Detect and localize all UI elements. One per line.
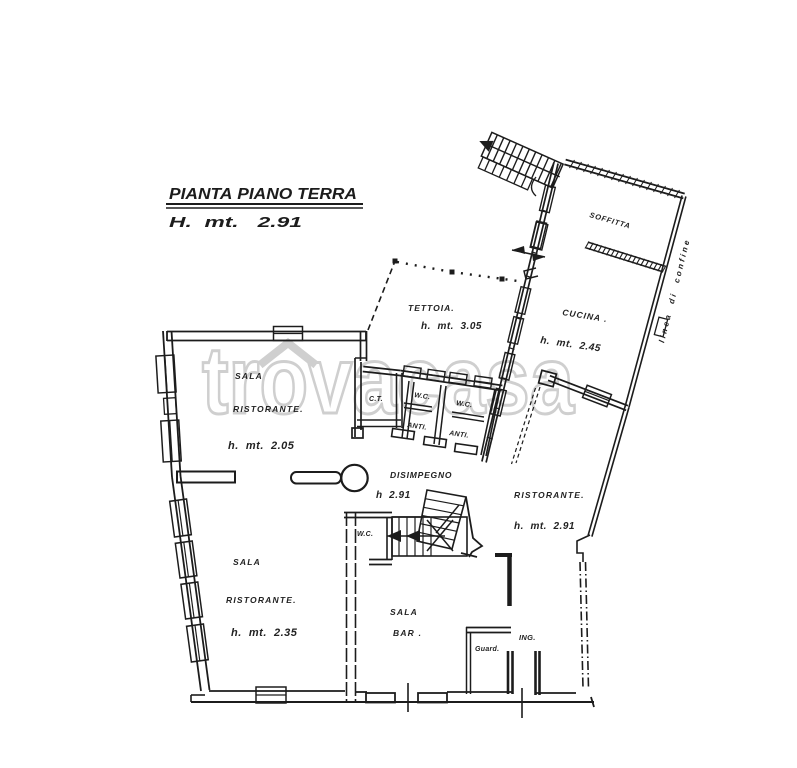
svg-text:ING.: ING. [519, 633, 536, 642]
svg-text:H. mt. 2.91: H. mt. 2.91 [169, 214, 302, 231]
svg-text:W.C.: W.C. [357, 531, 373, 538]
svg-text:h. mt. 2.91: h. mt. 2.91 [514, 521, 575, 532]
svg-text:DISIMPEGNO: DISIMPEGNO [390, 470, 452, 480]
svg-text:h. mt. 2.35: h. mt. 2.35 [231, 627, 298, 639]
svg-text:RISTORANTE.: RISTORANTE. [514, 490, 585, 500]
svg-text:RISTORANTE.: RISTORANTE. [226, 595, 297, 605]
svg-text:PIANTA PIANO TERRA: PIANTA PIANO TERRA [169, 186, 357, 203]
svg-text:Guard.: Guard. [475, 646, 499, 653]
svg-text:C.T.: C.T. [369, 396, 383, 403]
svg-text:h. mt. 3.05: h. mt. 3.05 [421, 321, 482, 332]
svg-text:SALA: SALA [235, 371, 263, 381]
svg-text:RISTORANTE.: RISTORANTE. [233, 404, 304, 414]
svg-text:BAR .: BAR . [393, 628, 422, 638]
svg-text:TETTOIA.: TETTOIA. [408, 303, 455, 313]
svg-text:h. mt. 2.05: h. mt. 2.05 [228, 440, 295, 452]
svg-text:SALA: SALA [390, 607, 418, 617]
svg-text:h 2.91: h 2.91 [376, 490, 411, 501]
svg-text:SALA: SALA [233, 557, 261, 567]
